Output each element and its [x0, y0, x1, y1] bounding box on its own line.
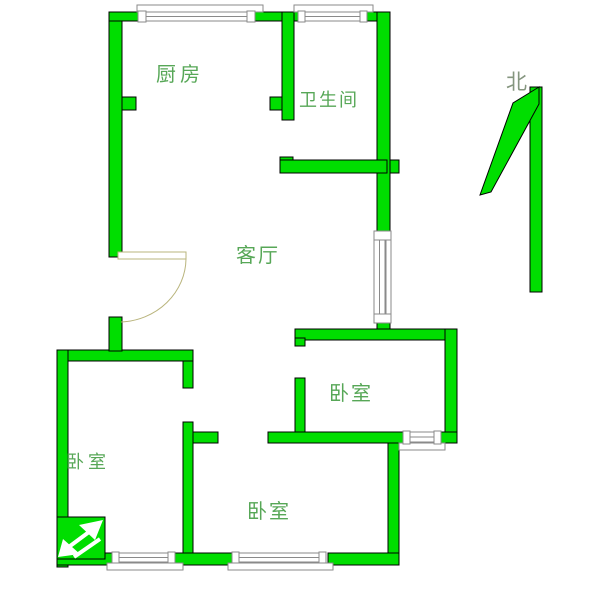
- window-bedroom-bottom-south: [228, 552, 333, 570]
- wall-east-nub: [390, 160, 399, 173]
- wall-bedroom-right-north: [295, 329, 455, 340]
- wall-south-right: [328, 553, 399, 565]
- label-bedroom-right: 卧室: [329, 381, 373, 405]
- floor-plan-svg: 北 厨房 卫生间 客厅 卧室 卧室 卧室: [0, 0, 600, 592]
- wall-bedroom-bottom-tab: [193, 432, 218, 443]
- wall-bedroom-right-east: [445, 329, 457, 442]
- floor-plan: 北 厨房 卫生间 客厅 卧室 卧室 卧室: [0, 0, 600, 592]
- window-kitchen-north: [137, 5, 263, 22]
- wall-bedroom-right-west-stub: [295, 338, 305, 346]
- walls: [57, 12, 457, 567]
- door-leaf: [118, 252, 186, 259]
- wall-bedroom-left-east-stub: [183, 361, 193, 388]
- wall-bedroom-left-east: [183, 422, 193, 565]
- label-bedroom-bottom: 卧室: [247, 499, 291, 523]
- wall-bedroom-bottom-east: [388, 443, 399, 565]
- wall-bedroom-bottom-north: [268, 432, 408, 443]
- wall-east-upper: [377, 12, 390, 232]
- window-bathroom-north: [294, 5, 373, 22]
- wall-bathroom-west: [282, 12, 294, 120]
- label-bedroom-left: 卧室: [66, 452, 110, 473]
- wall-kitchen-tab-west: [122, 97, 136, 110]
- corner-hatch-marker: [57, 517, 105, 559]
- label-bathroom: 卫生间: [299, 90, 359, 111]
- wall-west-upper: [109, 12, 122, 257]
- door-swing-arc: [121, 259, 186, 322]
- window-bedroom-left-south: [107, 552, 183, 570]
- wall-kitchen-tab-east: [270, 97, 282, 110]
- window-bedroom-right-south: [399, 431, 445, 450]
- entry-door: [118, 252, 186, 322]
- wall-north-left: [109, 12, 141, 21]
- label-living-room: 客厅: [236, 243, 280, 267]
- window-living-east: [374, 231, 391, 323]
- wall-bedroom-left-north: [57, 350, 193, 361]
- wall-west-lower: [109, 317, 122, 351]
- wall-bathroom-south: [280, 160, 387, 173]
- label-kitchen: 厨房: [156, 62, 204, 86]
- north-label: 北: [506, 70, 527, 94]
- north-arrow-icon: 北: [480, 70, 542, 292]
